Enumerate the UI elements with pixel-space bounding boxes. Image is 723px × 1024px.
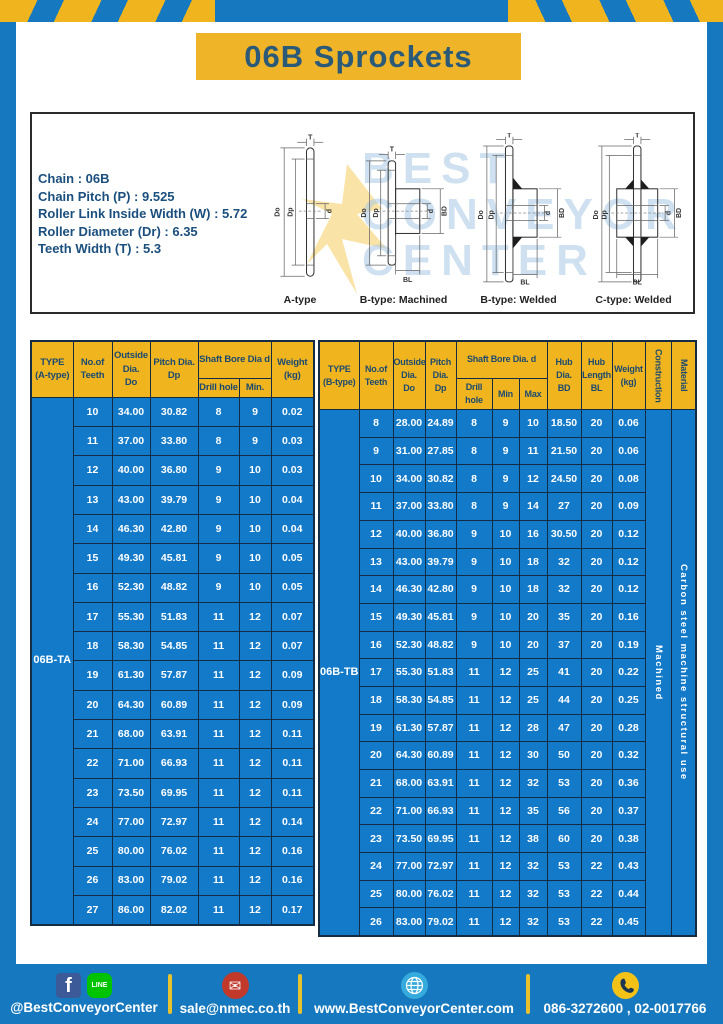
data-cell: 21 [359,770,393,798]
data-cell: 9 [198,544,239,573]
table-row: 1137.0033.80890.03 [31,427,314,456]
table-row: 2477.0072.9711120.14 [31,807,314,836]
diagram-caption: B-type: Machined [360,294,448,306]
svg-text:T: T [507,133,512,140]
globe-icon [401,972,428,999]
data-cell: 63.91 [150,720,198,749]
data-cell: 26 [73,866,112,895]
data-cell: 32 [547,548,581,576]
table-row: 06B-TA1034.0030.82890.02 [31,397,314,426]
data-cell: 9 [456,548,492,576]
table-row: 2373.5069.9511120.11 [31,778,314,807]
table-row: 1961.3057.8711120.09 [31,661,314,690]
phone-numbers: 086-3272600 , 02-0017766 [544,1001,707,1016]
data-cell: 64.30 [393,742,425,770]
data-cell: 18 [519,576,547,604]
data-cell: 9 [198,573,239,602]
data-cell: 24.89 [425,410,456,438]
data-cell: 37 [547,631,581,659]
data-cell: 18.50 [547,410,581,438]
table-row: 1858.3054.8511120.07 [31,632,314,661]
svg-text:Dp: Dp [288,207,295,216]
data-cell: 0.36 [612,770,645,798]
data-cell: 60.89 [150,690,198,719]
data-cell: 20 [581,686,612,714]
data-cell: 14 [73,514,112,543]
data-cell: 27.85 [425,437,456,465]
data-cell: 11 [198,749,239,778]
footer-website-section: www.BestConveyorCenter.com [302,972,526,1016]
data-cell: 9 [456,576,492,604]
svg-text:T: T [390,147,395,154]
data-cell: 18 [359,686,393,714]
data-cell: 43.00 [393,548,425,576]
table-row: 2271.0066.9311123556200.37 [319,797,696,825]
page-title: 06B Sprockets [244,39,472,75]
data-cell: 12 [239,632,271,661]
data-cell: 24 [73,807,112,836]
data-cell: 12 [239,602,271,631]
data-cell: 83.00 [112,866,150,895]
data-cell: 0.12 [612,576,645,604]
data-cell: 56 [547,797,581,825]
table-row: 1446.3042.809100.04 [31,514,314,543]
data-cell: 12 [492,908,519,936]
data-cell: 9 [492,465,519,493]
diagram-caption: B-type: Welded [480,294,556,306]
data-cell: 79.02 [425,908,456,936]
data-cell: 12 [492,742,519,770]
svg-text:BL: BL [520,280,530,287]
data-cell: 71.00 [112,749,150,778]
data-cell: 13 [73,485,112,514]
table-row: 1446.3042.809101832200.12 [319,576,696,604]
data-cell: 11 [456,686,492,714]
data-cell: 21.50 [547,437,581,465]
data-cell: 45.81 [150,544,198,573]
data-cell: 58.30 [112,632,150,661]
data-cell: 0.07 [271,602,314,631]
data-cell: 0.04 [271,514,314,543]
data-cell: 71.00 [393,797,425,825]
data-cell: 10 [519,410,547,438]
col-header-max: Max [519,379,547,410]
data-cell: 9 [198,514,239,543]
data-cell: 8 [456,437,492,465]
data-cell: 73.50 [393,825,425,853]
data-cell: 11 [456,908,492,936]
data-cell: 20 [359,742,393,770]
data-cell: 45.81 [425,603,456,631]
data-cell: 11 [456,853,492,881]
data-cell: 11 [456,714,492,742]
table-row: 1961.3057.8711122847200.28 [319,714,696,742]
svg-text:d: d [327,209,334,213]
data-cell: 30 [519,742,547,770]
data-cell: 82.02 [150,895,198,925]
data-cell: 10 [359,465,393,493]
data-cell: 10 [239,456,271,485]
data-cell: 24.50 [547,465,581,493]
data-cell: 46.30 [393,576,425,604]
data-cell: 11 [198,602,239,631]
data-cell: 18 [73,632,112,661]
data-cell: 11 [456,659,492,687]
data-cell: 51.83 [425,659,456,687]
table-row: 931.0027.85891121.50200.06 [319,437,696,465]
data-cell: 11 [519,437,547,465]
table-row: 06B-TB828.0024.89891018.50200.06Machined… [319,410,696,438]
data-cell: 76.02 [425,880,456,908]
data-cell: 20 [581,520,612,548]
data-cell: 0.11 [271,749,314,778]
data-cell: 55.30 [112,602,150,631]
b-type-welded-diagram: T Do Dp d BD [461,133,576,310]
data-cell: 22 [581,908,612,936]
spec-line: Chain : 06B [38,170,247,188]
data-cell: 18 [519,548,547,576]
svg-text:BD: BD [442,206,449,216]
table-row: 2786.0082.0211120.17 [31,895,314,925]
data-cell: 80.00 [393,880,425,908]
data-cell: 49.30 [112,544,150,573]
data-cell: 32 [519,908,547,936]
data-cell: 58.30 [393,686,425,714]
left-border [0,22,16,964]
data-cell: 0.19 [612,631,645,659]
data-cell: 0.06 [612,410,645,438]
data-cell: 48.82 [425,631,456,659]
data-cell: 68.00 [393,770,425,798]
col-header-type: TYPE (B-type) [319,341,359,410]
data-cell: 12 [73,456,112,485]
data-cell: 20 [581,437,612,465]
svg-text:Dp: Dp [602,210,609,219]
data-cell: 23 [73,778,112,807]
data-cell: 33.80 [150,427,198,456]
data-cell: 0.16 [271,837,314,866]
data-cell: 64.30 [112,690,150,719]
col-header-material: Material [671,341,696,410]
sprocket-diagrams: T Do Dp d A-type T [254,118,691,310]
table-row: 2064.3060.8911120.09 [31,690,314,719]
table-row: 1034.0030.82891224.50200.08 [319,465,696,493]
data-cell: 68.00 [112,720,150,749]
right-border [707,22,723,964]
data-cell: 12 [492,853,519,881]
data-cell: 0.22 [612,659,645,687]
table-row: 2683.0079.0211120.16 [31,866,314,895]
data-cell: 12 [492,686,519,714]
data-cell: 36.80 [425,520,456,548]
data-cell: 28.00 [393,410,425,438]
phone-icon [612,972,639,999]
svg-text:Dp: Dp [488,210,495,219]
data-cell: 0.05 [271,573,314,602]
diagram-caption: C-type: Welded [595,294,671,306]
data-cell: 23 [359,825,393,853]
data-cell: 51.83 [150,602,198,631]
data-cell: 17 [359,659,393,687]
data-cell: 20 [519,631,547,659]
data-cell: 22 [581,880,612,908]
col-header-construction: Construction [645,341,671,410]
data-cell: 30.82 [425,465,456,493]
website-url: www.BestConveyorCenter.com [314,1001,514,1016]
data-cell: 12 [492,659,519,687]
data-cell: 10 [239,544,271,573]
hazard-stripes-left [0,0,215,22]
svg-text:d: d [545,211,552,215]
col-header-teeth: No.of Teeth [73,341,112,397]
spec-line: Roller Link Inside Width (W) : 5.72 [38,205,247,223]
svg-text:T: T [635,133,640,140]
data-cell: 47 [547,714,581,742]
construction-value: Machined [645,410,671,937]
col-header-hub-length: Hub Length BL [581,341,612,410]
chain-specs: Chain : 06B Chain Pitch (P) : 9.525 Roll… [38,170,247,258]
data-cell: 11 [198,690,239,719]
page-title-box: 06B Sprockets [196,33,521,80]
data-cell: 37.00 [112,427,150,456]
data-cell: 11 [456,825,492,853]
data-cell: 11 [456,742,492,770]
data-cell: 11 [198,837,239,866]
data-cell: 34.00 [393,465,425,493]
data-cell: 9 [359,437,393,465]
data-cell: 0.05 [271,544,314,573]
svg-text:Do: Do [275,207,282,216]
data-cell: 12 [359,520,393,548]
data-cell: 72.97 [425,853,456,881]
data-cell: 14 [519,493,547,521]
data-cell: 9 [198,456,239,485]
data-cell: 20 [581,576,612,604]
data-cell: 80.00 [112,837,150,866]
table-row: 1549.3045.819100.05 [31,544,314,573]
data-cell: 32 [547,576,581,604]
data-cell: 9 [492,410,519,438]
col-header-shaft-bore: Shaft Bore Dia d [198,341,271,379]
data-cell: 0.43 [612,853,645,881]
data-cell: 0.25 [612,686,645,714]
data-cell: 0.06 [612,437,645,465]
data-cell: 20 [581,659,612,687]
data-cell: 83.00 [393,908,425,936]
spec-line: Teeth Width (T) : 5.3 [38,240,247,258]
data-cell: 0.03 [271,427,314,456]
data-cell: 11 [456,797,492,825]
col-header-drill-hole: Drill hole [198,379,239,398]
table-row: 2168.0063.9111123253200.36 [319,770,696,798]
svg-text:d: d [428,209,435,213]
data-cell: 66.93 [150,749,198,778]
table-row: 2168.0063.9111120.11 [31,720,314,749]
data-cell: 8 [359,410,393,438]
data-cell: 42.80 [425,576,456,604]
data-cell: 11 [198,720,239,749]
data-cell: 27 [547,493,581,521]
table-row: 1137.0033.80891427200.09 [319,493,696,521]
hazard-stripes-right [508,0,723,22]
data-cell: 12 [239,807,271,836]
data-cell: 39.79 [150,485,198,514]
data-cell: 60 [547,825,581,853]
data-cell: 0.11 [271,720,314,749]
data-cell: 77.00 [393,853,425,881]
data-cell: 20 [581,465,612,493]
data-cell: 11 [198,778,239,807]
data-cell: 9 [456,603,492,631]
table-row: 2477.0072.9711123253220.43 [319,853,696,881]
data-cell: 11 [359,493,393,521]
data-cell: 38 [519,825,547,853]
data-cell: 11 [73,427,112,456]
data-cell: 12 [239,866,271,895]
data-cell: 22 [359,797,393,825]
data-cell: 35 [547,603,581,631]
col-header-type: TYPE (A-type) [31,341,73,397]
table-row: 1240.0036.809100.03 [31,456,314,485]
data-cell: 31.00 [393,437,425,465]
data-cell: 41 [547,659,581,687]
svg-text:Do: Do [478,210,485,219]
data-cell: 16 [359,631,393,659]
facebook-icon: f [56,973,81,998]
data-cell: 52.30 [112,573,150,602]
line-icon: LINE [87,973,112,998]
data-cell: 10 [492,603,519,631]
data-cell: 0.28 [612,714,645,742]
data-cell: 25 [519,659,547,687]
data-cell: 12 [492,770,519,798]
c-type-welded-diagram: T Do Dp d BD [576,133,691,310]
data-cell: 48.82 [150,573,198,602]
data-cell: 22 [73,749,112,778]
table-row: 1549.3045.819102035200.16 [319,603,696,631]
data-cell: 0.11 [271,778,314,807]
data-cell: 37.00 [393,493,425,521]
data-cell: 33.80 [425,493,456,521]
data-cell: 42.80 [150,514,198,543]
table-row: 1858.3054.8511122544200.25 [319,686,696,714]
data-cell: 12 [239,720,271,749]
data-cell: 9 [456,631,492,659]
data-cell: 10 [239,573,271,602]
data-cell: 12 [239,837,271,866]
spec-panel: BEST CONVEYOR CENTER Chain : 06B Chain P… [30,112,695,314]
data-cell: 32 [519,770,547,798]
data-cell: 15 [359,603,393,631]
data-cell: 20 [581,631,612,659]
data-cell: 0.32 [612,742,645,770]
data-cell: 27 [73,895,112,925]
table-row: 2373.5069.9511123860200.38 [319,825,696,853]
data-cell: 20 [581,797,612,825]
data-cell: 25 [519,686,547,714]
data-cell: 11 [198,632,239,661]
table-row: 1755.3051.8311120.07 [31,602,314,631]
data-cell: 20 [581,603,612,631]
data-cell: 21 [73,720,112,749]
data-cell: 32 [519,853,547,881]
type-cell: 06B-TA [31,397,73,925]
data-cell: 14 [359,576,393,604]
data-cell: 20 [581,493,612,521]
data-cell: 28 [519,714,547,742]
data-cell: 69.95 [150,778,198,807]
data-cell: 54.85 [150,632,198,661]
data-cell: 40.00 [112,456,150,485]
data-cell: 72.97 [150,807,198,836]
table-row: 1240.0036.809101630.50200.12 [319,520,696,548]
data-cell: 73.50 [112,778,150,807]
table-row: 1755.3051.8311122541200.22 [319,659,696,687]
data-cell: 55.30 [393,659,425,687]
a-type-spec-table: TYPE (A-type) No.of Teeth Outside Dia. D… [30,340,315,926]
col-header-outside-dia: Outside Dia. Do [112,341,150,397]
table-row: 2064.3060.8911123050200.32 [319,742,696,770]
data-cell: 0.08 [612,465,645,493]
data-cell: 53 [547,908,581,936]
data-cell: 30.82 [150,397,198,426]
svg-text:T: T [308,135,313,142]
a-type-diagram: T Do Dp d A-type [254,133,346,310]
material-value: Carbon steel machine structural use [671,410,696,937]
data-cell: 19 [73,661,112,690]
data-cell: 25 [73,837,112,866]
data-cell: 36.80 [150,456,198,485]
col-header-weight: Weight (kg) [612,341,645,410]
data-cell: 12 [239,690,271,719]
data-cell: 22 [581,853,612,881]
col-header-drill-hole: Drill hole [456,379,492,410]
col-header-hub-dia: Hub Dia. BD [547,341,581,410]
data-cell: 20 [581,825,612,853]
footer-social-section: f LINE @BestConveyorCenter [0,973,168,1015]
data-cell: 44 [547,686,581,714]
data-cell: 0.12 [612,548,645,576]
data-cell: 50 [547,742,581,770]
data-cell: 0.16 [271,866,314,895]
data-cell: 46.30 [112,514,150,543]
data-cell: 15 [73,544,112,573]
data-cell: 16 [73,573,112,602]
data-cell: 0.16 [612,603,645,631]
data-cell: 57.87 [150,661,198,690]
data-cell: 26 [359,908,393,936]
data-cell: 20 [581,548,612,576]
col-header-outside-dia: Outside Dia. Do [393,341,425,410]
data-cell: 79.02 [150,866,198,895]
data-cell: 0.04 [271,485,314,514]
col-header-shaft-bore: Shaft Bore Dia. d [456,341,547,379]
data-cell: 10 [492,548,519,576]
data-cell: 20 [581,714,612,742]
data-cell: 0.12 [612,520,645,548]
data-cell: 19 [359,714,393,742]
table-row: 2271.0066.9311120.11 [31,749,314,778]
data-cell: 20 [519,603,547,631]
data-cell: 10 [239,514,271,543]
table-row: 1652.3048.829102037200.19 [319,631,696,659]
svg-text:Do: Do [361,208,368,217]
spec-line: Roller Diameter (Dr) : 6.35 [38,223,247,241]
data-cell: 0.37 [612,797,645,825]
data-cell: 53 [547,880,581,908]
data-cell: 10 [239,485,271,514]
data-cell: 12 [492,880,519,908]
